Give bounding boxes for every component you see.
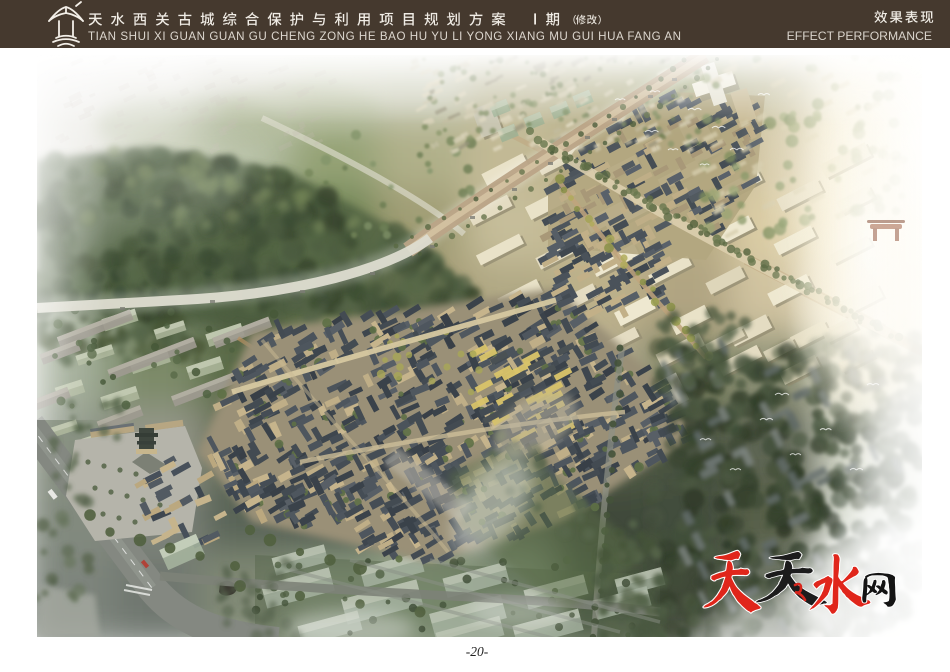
svg-text:EFFECT PERFORMANCE: EFFECT PERFORMANCE <box>787 29 932 43</box>
svg-text:-20-: -20- <box>466 644 489 659</box>
svg-text:TIAN SHUI XI GUAN GUAN GU CHEN: TIAN SHUI XI GUAN GUAN GU CHENG ZONG HE … <box>88 30 682 43</box>
